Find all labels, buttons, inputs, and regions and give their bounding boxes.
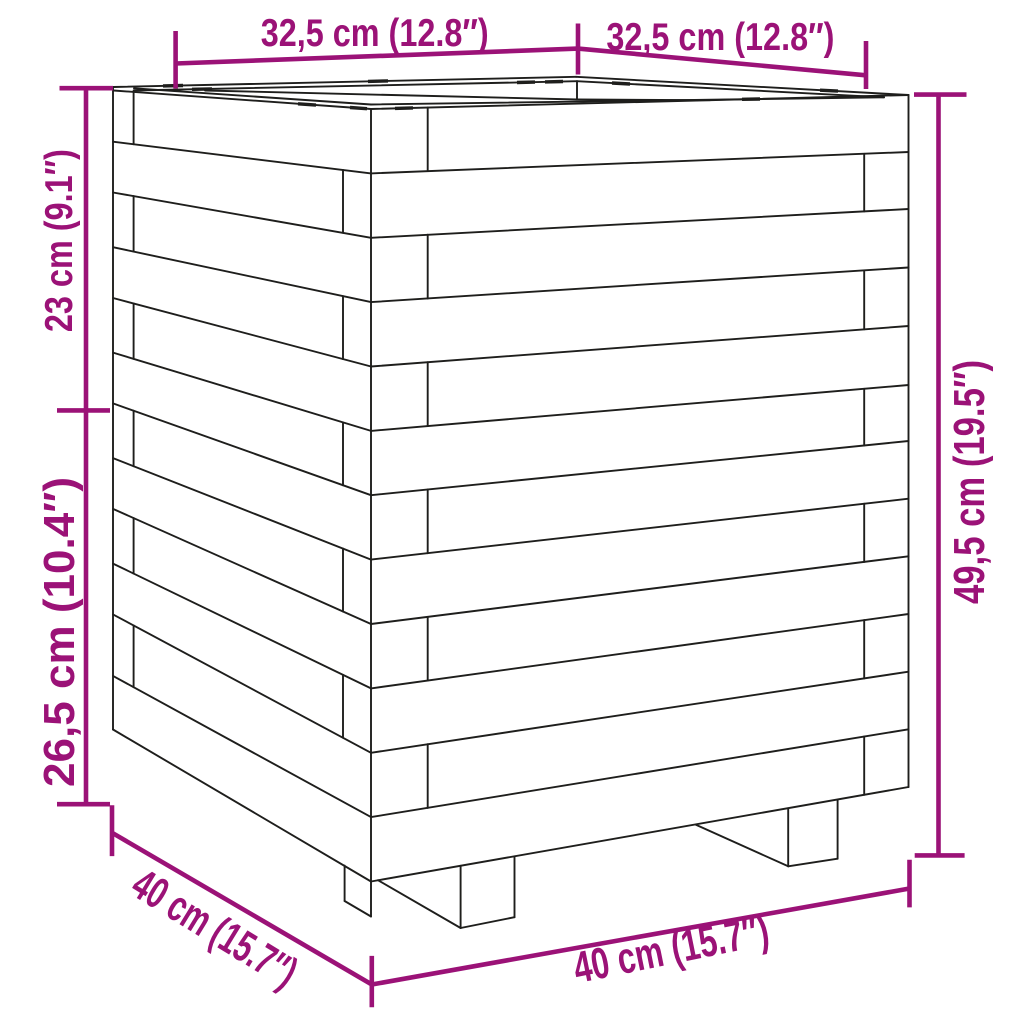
svg-text:23 cm (9.1″): 23 cm (9.1″): [38, 149, 81, 332]
svg-text:49,5 cm (19.5″): 49,5 cm (19.5″): [945, 360, 994, 604]
svg-text:32,5 cm (12.8″): 32,5 cm (12.8″): [261, 12, 489, 55]
svg-text:32,5 cm (12.8″): 32,5 cm (12.8″): [606, 16, 834, 59]
svg-text:26,5 cm (10.4″): 26,5 cm (10.4″): [35, 477, 84, 787]
